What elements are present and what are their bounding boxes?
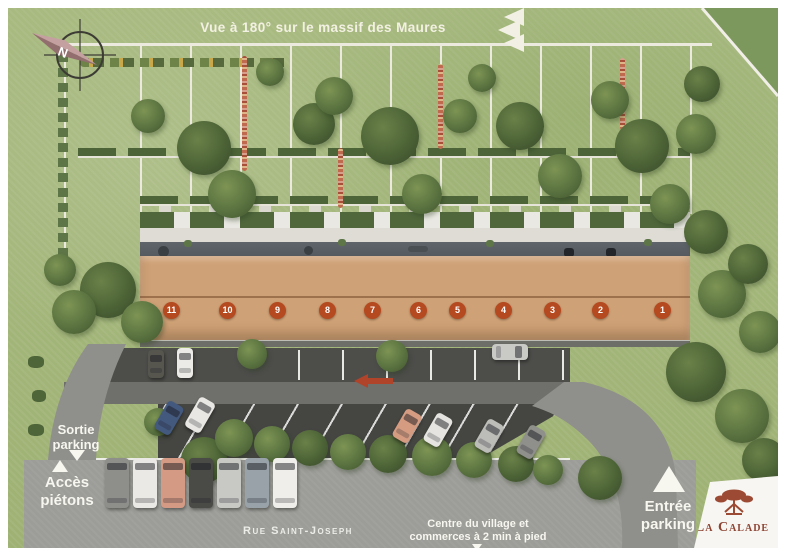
drive-direction-arrow-icon <box>354 374 394 388</box>
exit-parking-label: Sortie parking <box>36 422 116 452</box>
car <box>273 458 297 508</box>
arrow-head <box>354 374 368 388</box>
pedestrian-access-label: Accès piétons <box>12 474 122 510</box>
tree <box>666 342 726 402</box>
tree <box>44 254 76 286</box>
tree <box>739 311 778 353</box>
tree <box>615 119 669 173</box>
tree <box>742 438 778 482</box>
tree <box>315 77 353 115</box>
view-direction-arrows-icon <box>492 8 526 54</box>
tree <box>254 426 290 462</box>
tree <box>684 66 720 102</box>
pedestrian-access-arrow-icon <box>52 460 68 472</box>
tree <box>208 170 256 218</box>
olive-tree-logo-icon <box>712 488 756 518</box>
tree <box>330 434 366 470</box>
tree <box>591 81 629 119</box>
tree <box>650 184 690 224</box>
tree <box>52 290 96 334</box>
tree <box>533 455 563 485</box>
tree <box>131 99 165 133</box>
tree <box>177 121 231 175</box>
tree <box>215 419 253 457</box>
street-name-label: Rue Saint-Joseph <box>218 525 378 537</box>
tree <box>728 244 768 284</box>
tree <box>402 174 442 214</box>
hedge-bush <box>32 390 46 402</box>
unit-badge-1: 1 <box>654 302 671 319</box>
car <box>133 458 157 508</box>
unit-badge-3: 3 <box>544 302 561 319</box>
unit-badge-9: 9 <box>269 302 286 319</box>
arrow-bar <box>367 378 393 384</box>
tree <box>376 340 408 372</box>
compass-icon: N <box>30 15 130 99</box>
tree <box>443 99 477 133</box>
tree <box>292 430 328 466</box>
car <box>189 458 213 508</box>
car <box>217 458 241 508</box>
tree <box>256 58 284 86</box>
view-banner-label: Vue à 180° sur le massif des Maures <box>123 20 523 35</box>
brand-name: La Calade <box>690 520 774 536</box>
entrance-parking-arrow-icon <box>653 466 685 492</box>
unit-badge-4: 4 <box>495 302 512 319</box>
village-direction-arrow-icon <box>472 544 482 548</box>
unit-badge-2: 2 <box>592 302 609 319</box>
hedge-bush <box>28 356 44 368</box>
car <box>177 348 193 378</box>
car <box>492 344 528 360</box>
unit-badge-5: 5 <box>449 302 466 319</box>
unit-badge-11: 11 <box>163 302 180 319</box>
plan-canvas: 11 10 9 8 7 6 5 4 3 2 1 N Vue à 180° sur… <box>8 8 778 548</box>
car <box>161 458 185 508</box>
tree <box>237 339 267 369</box>
unit-badge-7: 7 <box>364 302 381 319</box>
exit-parking-arrow-icon <box>69 450 85 461</box>
tree <box>715 389 769 443</box>
car <box>245 458 269 508</box>
tree <box>676 114 716 154</box>
tree <box>496 102 544 150</box>
unit-badge-10: 10 <box>219 302 236 319</box>
tree <box>538 154 582 198</box>
unit-badge-8: 8 <box>319 302 336 319</box>
unit-badge-6: 6 <box>410 302 427 319</box>
tree <box>578 456 622 500</box>
village-distance-label: Centre du village et commerces à 2 min à… <box>388 518 568 544</box>
site-plan: 11 10 9 8 7 6 5 4 3 2 1 N Vue à 180° sur… <box>0 0 786 556</box>
tree <box>361 107 419 165</box>
car <box>148 350 164 378</box>
tree <box>468 64 496 92</box>
tree <box>121 301 163 343</box>
tree <box>684 210 728 254</box>
